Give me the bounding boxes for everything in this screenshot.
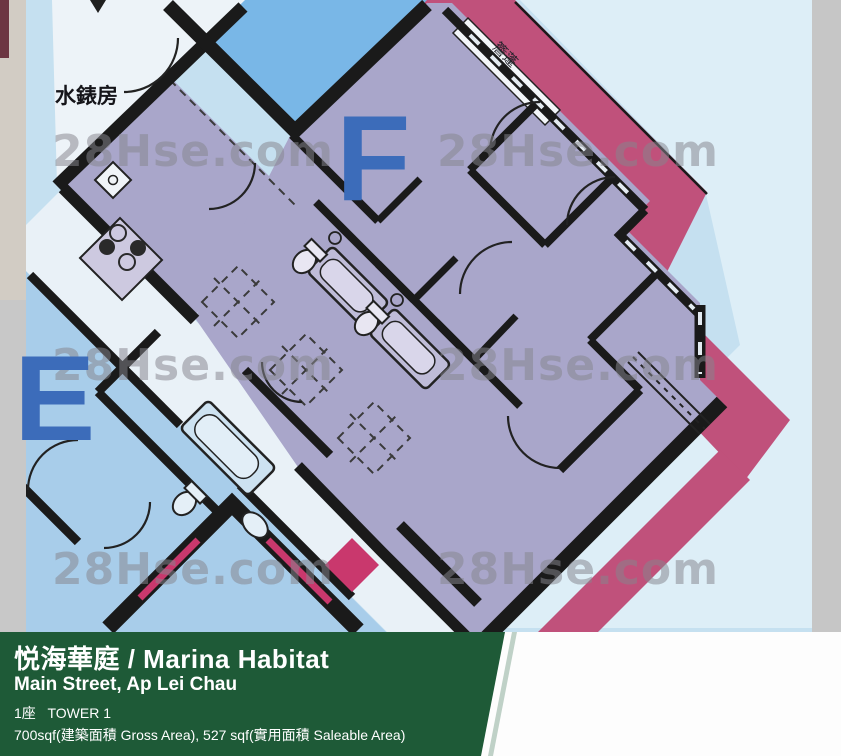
unit-label-e: E: [14, 330, 95, 466]
info-footer: 悦海華庭 / Marina Habitat Main Street, Ap Le…: [0, 632, 841, 756]
watermark-text: 28Hse.com: [52, 126, 334, 177]
right-edge-strip: [812, 0, 841, 632]
watermark-text: 28Hse.com: [437, 340, 719, 391]
area-label: 700sqf(建築面積 Gross Area), 527 sqf(實用面積 Sa…: [14, 725, 405, 745]
footer-green-panel: 悦海華庭 / Marina Habitat Main Street, Ap Le…: [0, 632, 841, 756]
left-edge-maroon: [0, 0, 9, 58]
unit-label-f: F: [336, 90, 411, 226]
floor-plan-page: 28Hse.com 28Hse.com 28Hse.com 28Hse.com …: [0, 0, 841, 756]
water-meter-label: 水錶房: [55, 84, 118, 108]
tower-label: 1座 TOWER 1: [14, 703, 111, 723]
estate-address: Main Street, Ap Lei Chau: [14, 674, 237, 696]
floor-plan-svg: 28Hse.com 28Hse.com 28Hse.com 28Hse.com …: [0, 0, 841, 632]
watermark-text: 28Hse.com: [437, 126, 719, 177]
watermark-text: 28Hse.com: [437, 544, 719, 595]
estate-title: 悦海華庭 / Marina Habitat: [14, 639, 329, 676]
floor-plan-image: 28Hse.com 28Hse.com 28Hse.com 28Hse.com …: [0, 0, 841, 632]
watermark-text: 28Hse.com: [52, 544, 334, 595]
